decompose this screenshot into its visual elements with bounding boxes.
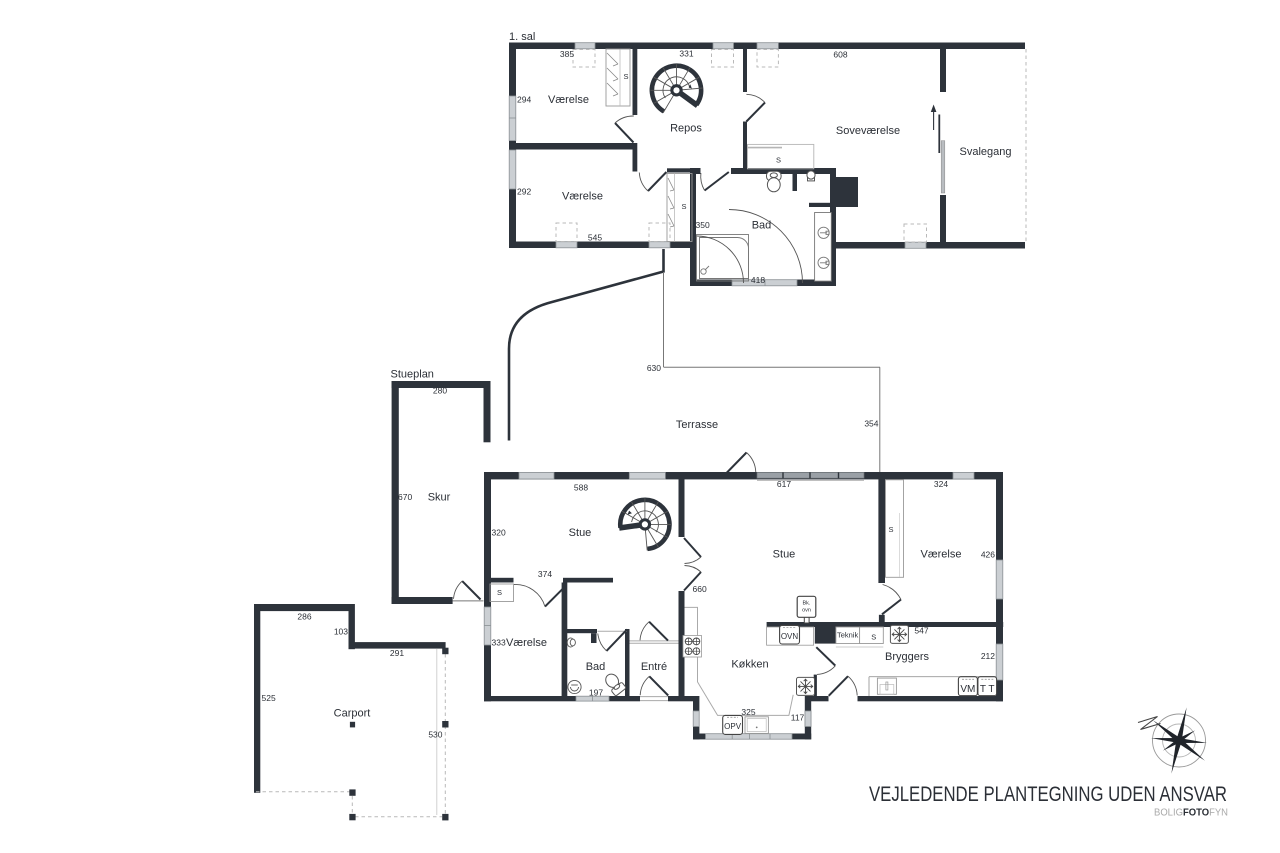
svg-text:324: 324 [934,479,948,489]
svg-text:280: 280 [433,386,447,396]
svg-text:S: S [776,156,781,165]
svg-text:354: 354 [864,419,878,429]
svg-text:333: 333 [492,638,506,648]
svg-text:212: 212 [981,651,995,661]
svg-text:530: 530 [428,730,442,740]
svg-text:T T: T T [980,684,995,695]
svg-text:1. sal: 1. sal [509,31,535,43]
svg-text:547: 547 [914,626,928,636]
svg-text:Værelse: Værelse [506,637,547,649]
svg-text:BOLIGFOTOFYN: BOLIGFOTOFYN [1154,807,1228,819]
svg-text:Stueplan: Stueplan [391,369,434,381]
svg-text:617: 617 [777,479,791,489]
svg-text:Repos: Repos [670,123,702,135]
svg-text:Teknik: Teknik [837,631,859,640]
svg-text:Værelse: Værelse [921,549,962,561]
svg-text:418: 418 [751,275,765,285]
svg-text:Bad: Bad [752,220,772,232]
svg-text:286: 286 [297,612,311,622]
svg-text:670: 670 [398,492,412,502]
svg-text:331: 331 [679,49,693,59]
svg-text:545: 545 [588,233,602,243]
svg-text:Carport: Carport [334,708,371,720]
svg-text:Stue: Stue [773,549,796,561]
svg-text:Bad: Bad [586,661,606,673]
svg-text:Stue: Stue [569,527,592,539]
svg-text:630: 630 [647,363,661,373]
svg-text:Værelse: Værelse [548,94,589,106]
svg-text:385: 385 [560,49,574,59]
svg-text:S: S [624,72,629,81]
svg-text:117: 117 [791,713,805,723]
svg-text:Skur: Skur [428,492,451,504]
svg-text:374: 374 [538,569,552,579]
svg-text:294: 294 [517,95,531,105]
svg-text:Værelse: Værelse [562,191,603,203]
svg-text:325: 325 [741,707,755,717]
svg-text:S: S [682,202,687,211]
svg-text:292: 292 [517,187,531,197]
svg-text:OPV: OPV [724,722,742,731]
svg-text:426: 426 [981,550,995,560]
svg-text:ovn: ovn [802,608,811,614]
svg-text:660: 660 [693,584,707,594]
svg-text:197: 197 [589,687,603,697]
svg-text:VEJLEDENDE PLANTEGNING UDEN AN: VEJLEDENDE PLANTEGNING UDEN ANSVAR [869,783,1227,806]
svg-text:103: 103 [334,627,348,637]
svg-text:Entré: Entré [641,661,667,673]
svg-text:525: 525 [262,693,276,703]
svg-text:320: 320 [492,528,506,538]
svg-text:S: S [497,588,502,597]
svg-text:291: 291 [390,648,404,658]
svg-text:Terrasse: Terrasse [676,419,718,431]
svg-text:Bryggers: Bryggers [885,651,930,663]
svg-text:Bk.: Bk. [803,601,811,607]
svg-text:Svalegang: Svalegang [960,146,1012,158]
svg-text:S: S [889,525,894,534]
svg-text:S: S [871,632,876,641]
svg-text:350: 350 [696,220,710,230]
svg-text:Soveværelse: Soveværelse [836,125,900,137]
svg-text:OVN: OVN [781,632,799,641]
svg-text:588: 588 [574,483,588,493]
svg-text:Køkken: Køkken [731,659,768,671]
svg-text:VM: VM [960,684,975,695]
svg-text:608: 608 [833,50,847,60]
